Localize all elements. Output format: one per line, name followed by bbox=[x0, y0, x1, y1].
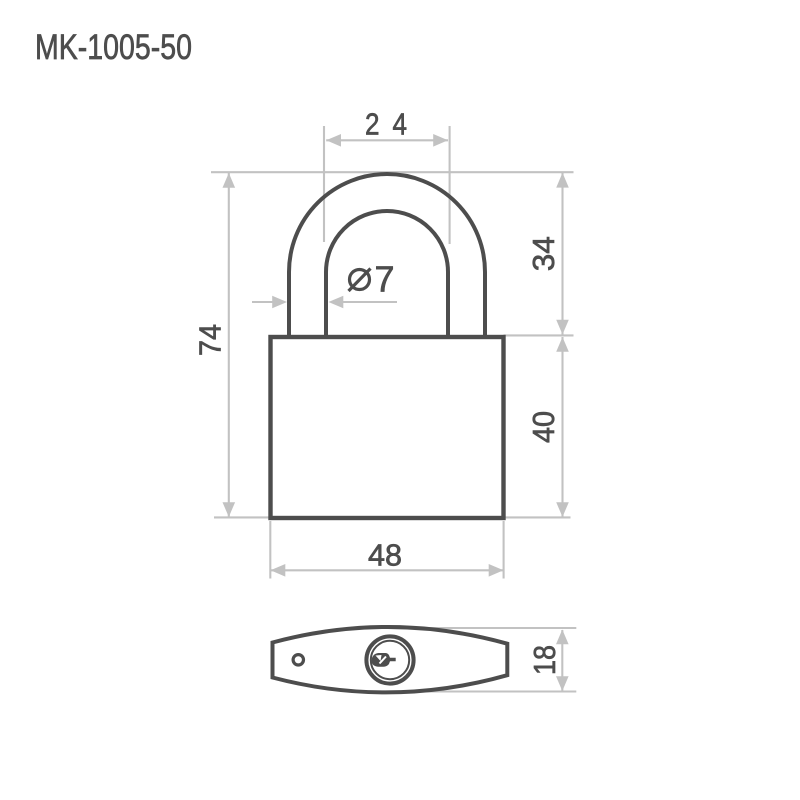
svg-text:48: 48 bbox=[368, 537, 402, 572]
svg-text:7: 7 bbox=[375, 258, 395, 299]
svg-text:74: 74 bbox=[193, 324, 228, 356]
svg-text:34: 34 bbox=[526, 236, 561, 271]
svg-text:40: 40 bbox=[526, 411, 561, 443]
svg-text:18: 18 bbox=[527, 645, 562, 675]
svg-text:4: 4 bbox=[393, 107, 408, 142]
svg-text:2: 2 bbox=[365, 107, 380, 142]
svg-text:MK-1005-50: MK-1005-50 bbox=[35, 28, 192, 67]
